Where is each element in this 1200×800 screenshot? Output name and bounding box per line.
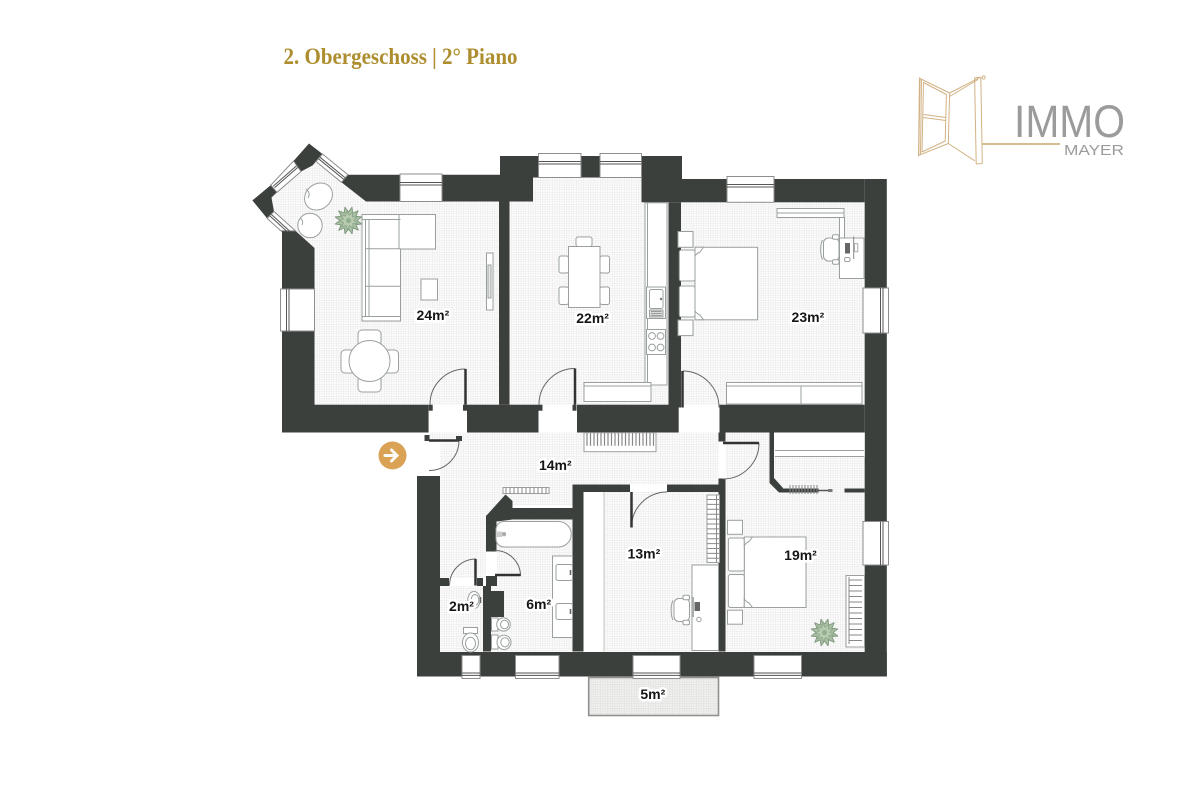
svg-text:23m²: 23m² xyxy=(792,309,825,325)
svg-text:5m²: 5m² xyxy=(640,686,665,702)
svg-text:2m²: 2m² xyxy=(449,598,474,614)
svg-text:6m²: 6m² xyxy=(526,596,551,612)
svg-text:22m²: 22m² xyxy=(576,310,609,326)
svg-text:MAYER: MAYER xyxy=(1064,142,1124,159)
svg-text:24m²: 24m² xyxy=(417,307,450,323)
svg-text:IMMO: IMMO xyxy=(1014,96,1125,147)
svg-text:19m²: 19m² xyxy=(784,547,817,563)
svg-text:14m²: 14m² xyxy=(539,457,572,473)
svg-text:13m²: 13m² xyxy=(628,546,661,562)
svg-text:2. Obergeschoss | 2° Piano: 2. Obergeschoss | 2° Piano xyxy=(284,44,518,70)
